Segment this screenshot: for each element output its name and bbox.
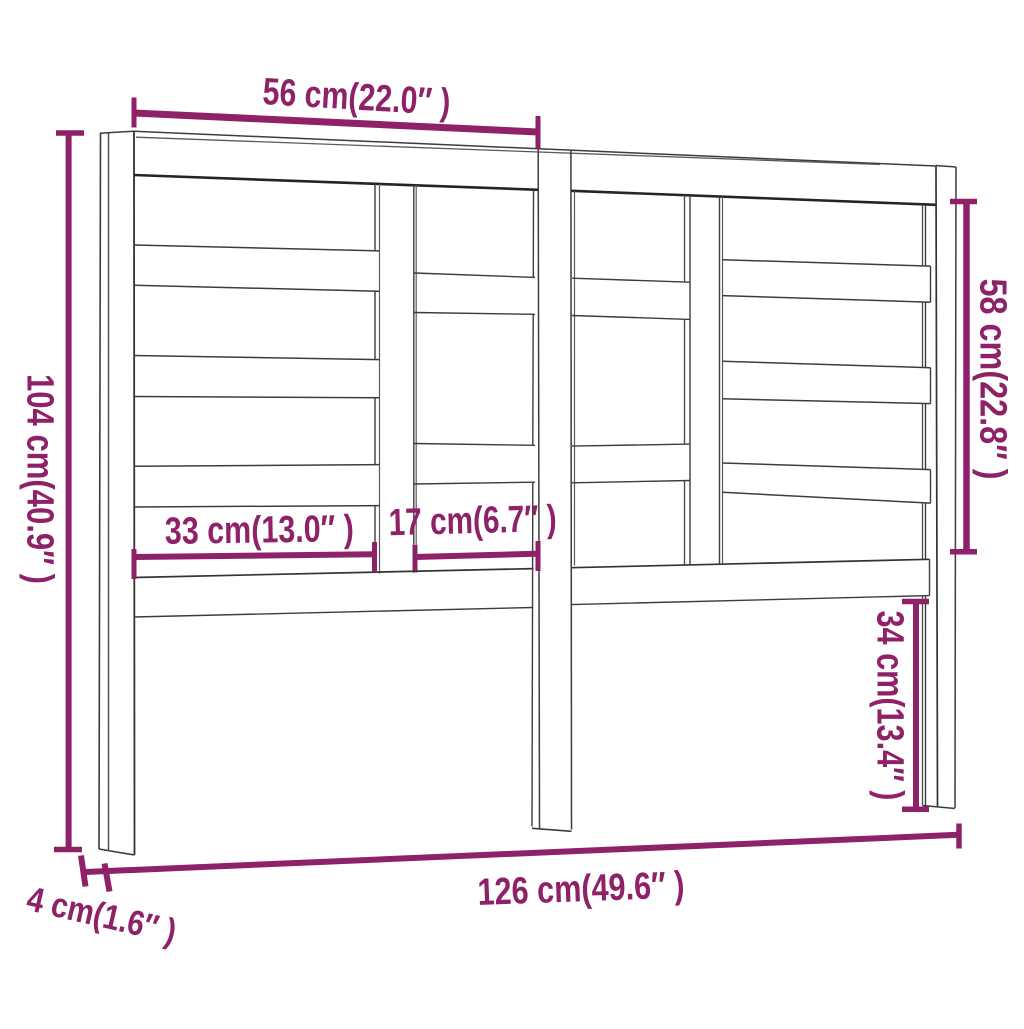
svg-text:104 cm(40.9″ ): 104 cm(40.9″ ) (19, 374, 61, 584)
svg-text:34 cm(13.4″ ): 34 cm(13.4″ ) (869, 611, 911, 801)
svg-text:126 cm(49.6″ ): 126 cm(49.6″ ) (477, 864, 685, 914)
svg-text:33 cm(13.0″ ): 33 cm(13.0″ ) (165, 508, 355, 553)
svg-text:58 cm(22.8″ ): 58 cm(22.8″ ) (972, 279, 1014, 480)
svg-text:17 cm(6.7″ ): 17 cm(6.7″ ) (388, 498, 557, 544)
